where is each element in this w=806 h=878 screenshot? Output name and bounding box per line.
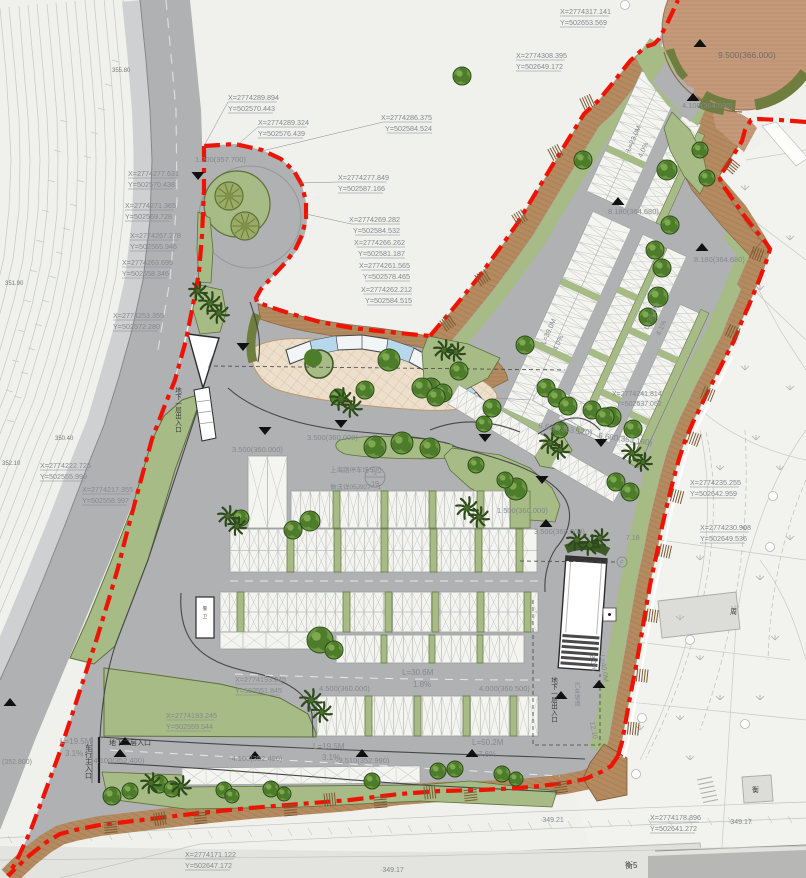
svg-text:X=2774267.278: X=2774267.278 — [130, 231, 181, 240]
svg-text:汽车坡道: 汽车坡道 — [573, 681, 580, 707]
svg-text:Y=502584.532: Y=502584.532 — [353, 226, 400, 235]
svg-text:Y=502558.346: Y=502558.346 — [122, 269, 169, 278]
svg-text:X=2774171.122: X=2774171.122 — [185, 850, 236, 859]
svg-text:X=2774241.814: X=2774241.814 — [612, 391, 662, 398]
svg-text:X=2774193.245: X=2774193.245 — [166, 711, 217, 720]
svg-text:地下二层入口: 地下二层入口 — [109, 738, 151, 747]
svg-text:7.18: 7.18 — [626, 535, 640, 542]
svg-text:Y=502581.187: Y=502581.187 — [358, 249, 405, 258]
svg-text:9.500(366.000): 9.500(366.000) — [718, 50, 776, 60]
svg-text:-4.100(352.400): -4.100(352.400) — [91, 756, 145, 765]
svg-text:Y=502559.544: Y=502559.544 — [166, 722, 213, 731]
svg-text:351.90: 351.90 — [5, 281, 24, 287]
svg-text:车行主入口: 车行主入口 — [85, 743, 93, 779]
svg-text:卫: 卫 — [203, 614, 208, 619]
svg-text:X=2774235.255: X=2774235.255 — [690, 478, 741, 487]
svg-text:F: F — [620, 561, 624, 567]
svg-text:X=2774317.141: X=2774317.141 — [560, 7, 611, 16]
svg-text:4.100(364.680): 4.100(364.680) — [682, 101, 733, 110]
svg-text:8.180(364.680): 8.180(364.680) — [694, 255, 745, 264]
svg-text:X=2774308.395: X=2774308.395 — [516, 51, 567, 60]
svg-text:3.500(360.000): 3.500(360.000) — [232, 445, 283, 454]
svg-text:4.500(360.000): 4.500(360.000) — [319, 684, 370, 693]
svg-text:X=2774269.282: X=2774269.282 — [349, 215, 400, 224]
svg-text:4.000(360.500): 4.000(360.500) — [479, 684, 530, 693]
svg-text:8.180(364.680): 8.180(364.680) — [608, 207, 659, 216]
svg-text:1.500(360.000): 1.500(360.000) — [497, 506, 548, 515]
svg-text:X=2774261.565: X=2774261.565 — [359, 261, 410, 270]
svg-text:X=2774263.695: X=2774263.695 — [122, 258, 173, 267]
svg-text:·349.21: ·349.21 — [540, 817, 564, 824]
svg-text:X=2774230.903: X=2774230.903 — [700, 523, 751, 532]
svg-text:Y=502647.172: Y=502647.172 — [185, 861, 232, 870]
svg-text:X=2774217.355: X=2774217.355 — [82, 485, 133, 494]
svg-text:衡5: 衡5 — [625, 860, 638, 870]
svg-text:-3.510(352.990): -3.510(352.990) — [336, 756, 390, 765]
svg-text:1.200(357.700): 1.200(357.700) — [195, 155, 246, 164]
svg-text:X=2774178.896: X=2774178.896 — [650, 813, 701, 822]
svg-text:Y=502587.166: Y=502587.166 — [338, 184, 385, 193]
svg-text:X=2774277.849: X=2774277.849 — [338, 173, 389, 182]
svg-text:Y=502565.946: Y=502565.946 — [130, 242, 177, 251]
svg-text:Y=502570.438: Y=502570.438 — [128, 180, 175, 189]
svg-text:Y=502584.515: Y=502584.515 — [365, 296, 412, 305]
svg-text:X=2774286.375: X=2774286.375 — [381, 113, 432, 122]
svg-text:355.80: 355.80 — [112, 68, 131, 74]
svg-text:350.40: 350.40 — [55, 436, 74, 442]
svg-text:Y=502649.172: Y=502649.172 — [516, 62, 563, 71]
svg-text:7.6%: 7.6% — [478, 750, 496, 759]
svg-text:X=2774289.324: X=2774289.324 — [258, 118, 309, 127]
svg-text:L=50.2M: L=50.2M — [472, 738, 504, 747]
svg-text:Y=502637.062: Y=502637.062 — [616, 401, 662, 408]
svg-text:衡: 衡 — [752, 785, 759, 794]
svg-text:1.8%: 1.8% — [413, 680, 431, 689]
svg-text:Y=502570.443: Y=502570.443 — [228, 104, 275, 113]
svg-text:Y=502551.845: Y=502551.845 — [235, 686, 282, 695]
svg-text:Y=502576.439: Y=502576.439 — [258, 129, 305, 138]
svg-text:X=2774222.725: X=2774222.725 — [40, 461, 91, 470]
svg-text:X=2774262.212: X=2774262.212 — [361, 285, 412, 294]
svg-text:Y=502653.569: Y=502653.569 — [560, 18, 607, 27]
svg-text:周: 周 — [730, 608, 737, 616]
svg-text:Y=502569.728: Y=502569.728 — [125, 212, 172, 221]
svg-text:X=2774253.355: X=2774253.355 — [113, 311, 164, 320]
svg-text:Y=502578.465: Y=502578.465 — [363, 272, 410, 281]
svg-text:·349.17: ·349.17 — [728, 819, 752, 826]
svg-text:3.1%: 3.1% — [322, 753, 340, 762]
svg-text:X=2774193.245: X=2774193.245 — [235, 675, 286, 684]
svg-text:(352.800): (352.800) — [2, 759, 32, 766]
svg-text:Y=502572.280: Y=502572.280 — [113, 322, 160, 331]
svg-text:X=2774266.262: X=2774266.262 — [354, 238, 405, 247]
svg-text:Y=502642.959: Y=502642.959 — [690, 489, 737, 498]
svg-text:L=19.5M: L=19.5M — [313, 742, 345, 751]
svg-text:X=2774289.894: X=2774289.894 — [228, 93, 279, 102]
svg-text:X=2774277.631: X=2774277.631 — [128, 169, 179, 178]
svg-text:X=2774271.365: X=2774271.365 — [125, 201, 176, 210]
svg-text:3.500(360.000): 3.500(360.000) — [307, 433, 358, 442]
svg-text:上海路停车场车位: 上海路停车场车位 — [330, 465, 383, 474]
svg-text:352.10: 352.10 — [2, 461, 21, 467]
svg-text:Y=502649.536: Y=502649.536 — [700, 534, 747, 543]
svg-text:警: 警 — [203, 605, 208, 612]
svg-text:3.1%: 3.1% — [65, 749, 83, 758]
svg-text:L=30.6M: L=30.6M — [402, 668, 434, 677]
svg-text:Y=502584.524: Y=502584.524 — [385, 124, 432, 133]
svg-text:Y=502641.272: Y=502641.272 — [650, 824, 697, 833]
svg-text:Y=502555.999: Y=502555.999 — [40, 472, 87, 481]
svg-text:-4.100(352.400): -4.100(352.400) — [229, 754, 283, 763]
svg-text:·349.17: ·349.17 — [380, 867, 404, 874]
svg-text:3.500(360.000): 3.500(360.000) — [534, 527, 585, 536]
svg-text:做法详05J927—1: 做法详05J927—1 — [330, 482, 381, 491]
svg-text:Y=502558.997: Y=502558.997 — [82, 496, 129, 505]
